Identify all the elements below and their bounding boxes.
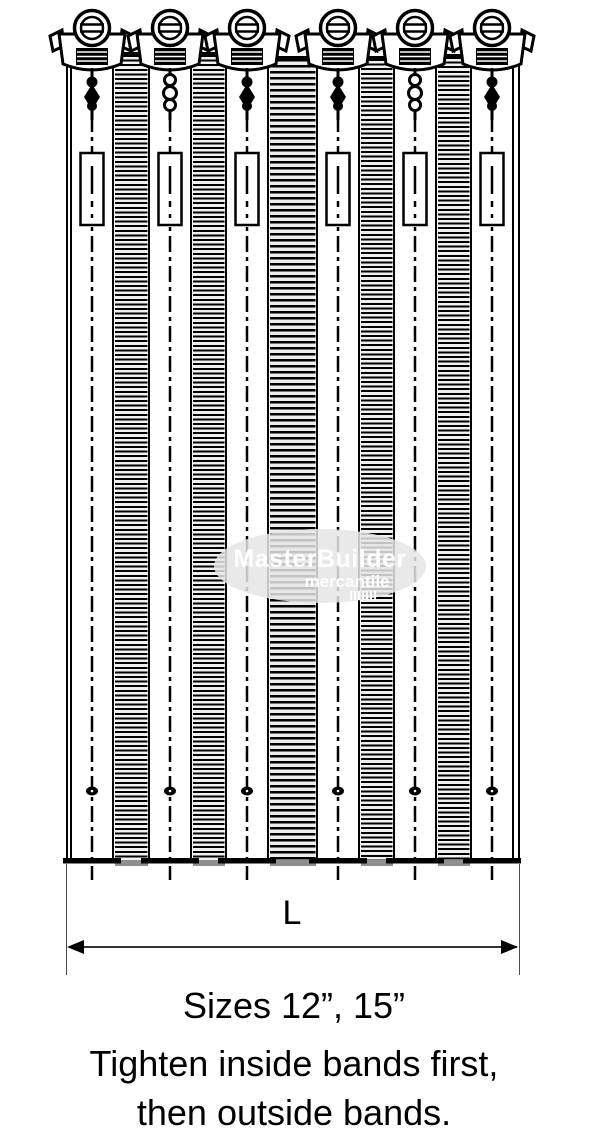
watermark-text: MasterBuilder bbox=[206, 545, 434, 574]
watermark-barcode bbox=[350, 591, 378, 600]
dimension-arrow-left-icon bbox=[67, 940, 84, 954]
dimension-extension-line-right bbox=[519, 864, 520, 975]
caption-tighten-line1: Tighten inside bands first, bbox=[16, 1039, 572, 1089]
clamp-band-6 bbox=[447, 4, 537, 880]
caption-tighten-line2: then outside bands. bbox=[16, 1088, 572, 1135]
clamp-band-1 bbox=[47, 4, 137, 880]
dimension-extension-line-left bbox=[66, 864, 67, 975]
watermark-subtext: mercantile bbox=[282, 572, 412, 592]
dimension-arrow-right-icon bbox=[501, 940, 518, 954]
caption-block: Sizes 12”, 15” Tighten inside bands firs… bbox=[16, 981, 572, 1135]
clamp-technical-drawing: MasterBuilder mercantile L Sizes 12”, 15… bbox=[0, 0, 600, 1135]
clamp-band-3 bbox=[202, 4, 292, 880]
dimension-label: L bbox=[262, 894, 322, 933]
dimension-line bbox=[69, 946, 517, 948]
caption-sizes: Sizes 12”, 15” bbox=[16, 981, 572, 1031]
